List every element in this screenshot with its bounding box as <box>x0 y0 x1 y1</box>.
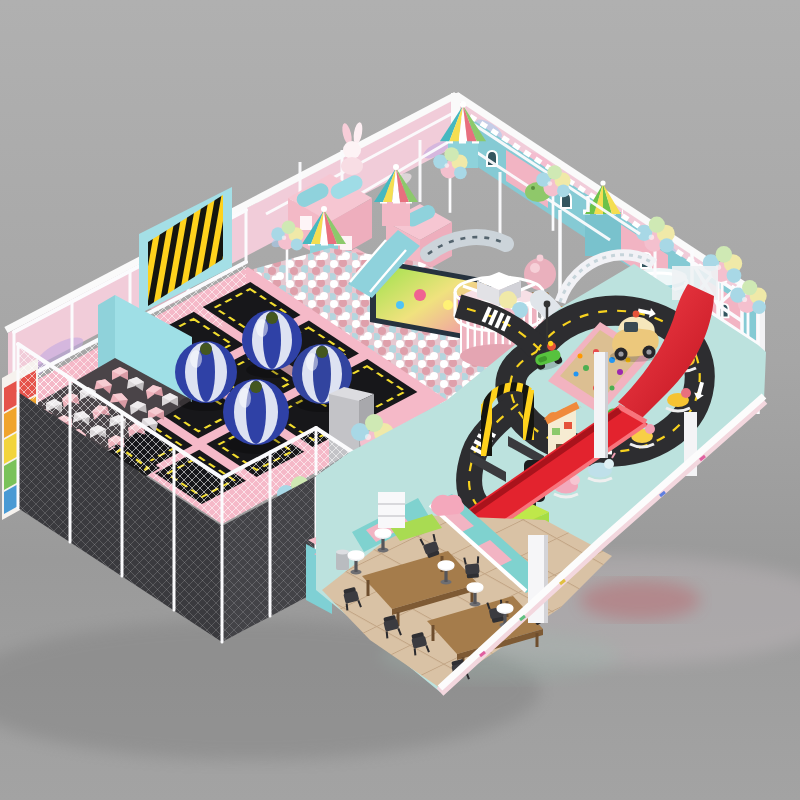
trash-bin <box>336 549 349 570</box>
slide-reflection <box>580 580 700 620</box>
sofa <box>431 495 464 516</box>
playground-scene <box>0 0 800 800</box>
shelf <box>378 492 405 528</box>
playground-render <box>0 0 800 800</box>
